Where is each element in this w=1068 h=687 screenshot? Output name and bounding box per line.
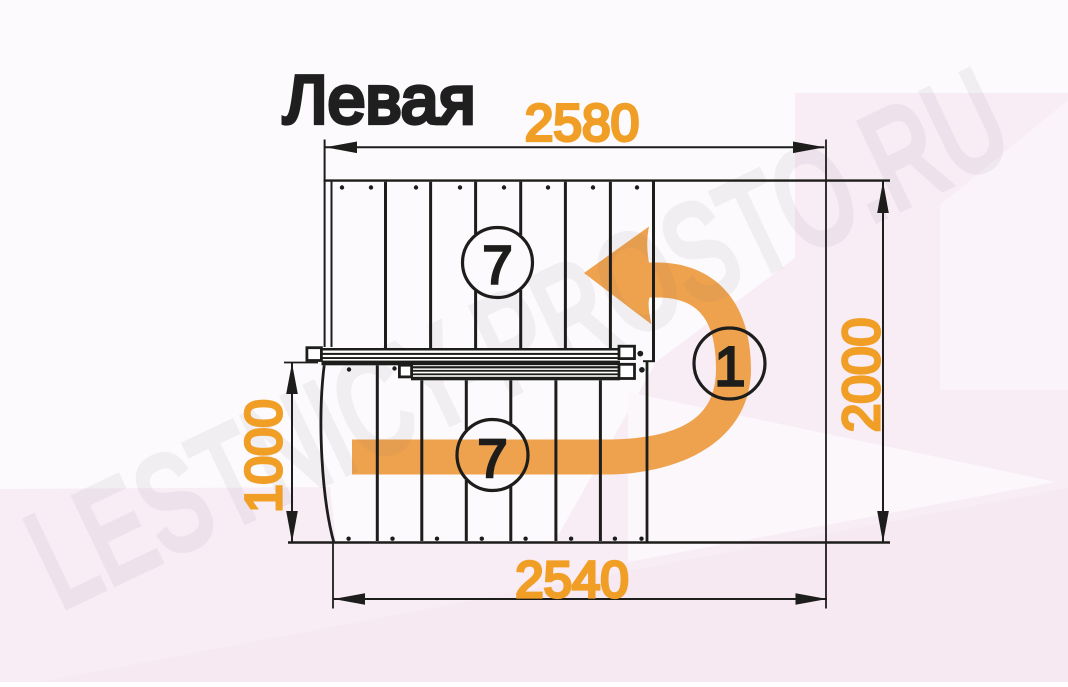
svg-text:2540: 2540	[515, 551, 628, 608]
svg-text:1: 1	[714, 335, 745, 398]
svg-text:7: 7	[482, 236, 512, 296]
svg-text:Левая: Левая	[283, 62, 475, 138]
svg-text:2000: 2000	[832, 318, 890, 433]
svg-text:1000: 1000	[235, 399, 292, 512]
svg-text:7: 7	[477, 429, 507, 489]
svg-text:2580: 2580	[525, 94, 640, 152]
